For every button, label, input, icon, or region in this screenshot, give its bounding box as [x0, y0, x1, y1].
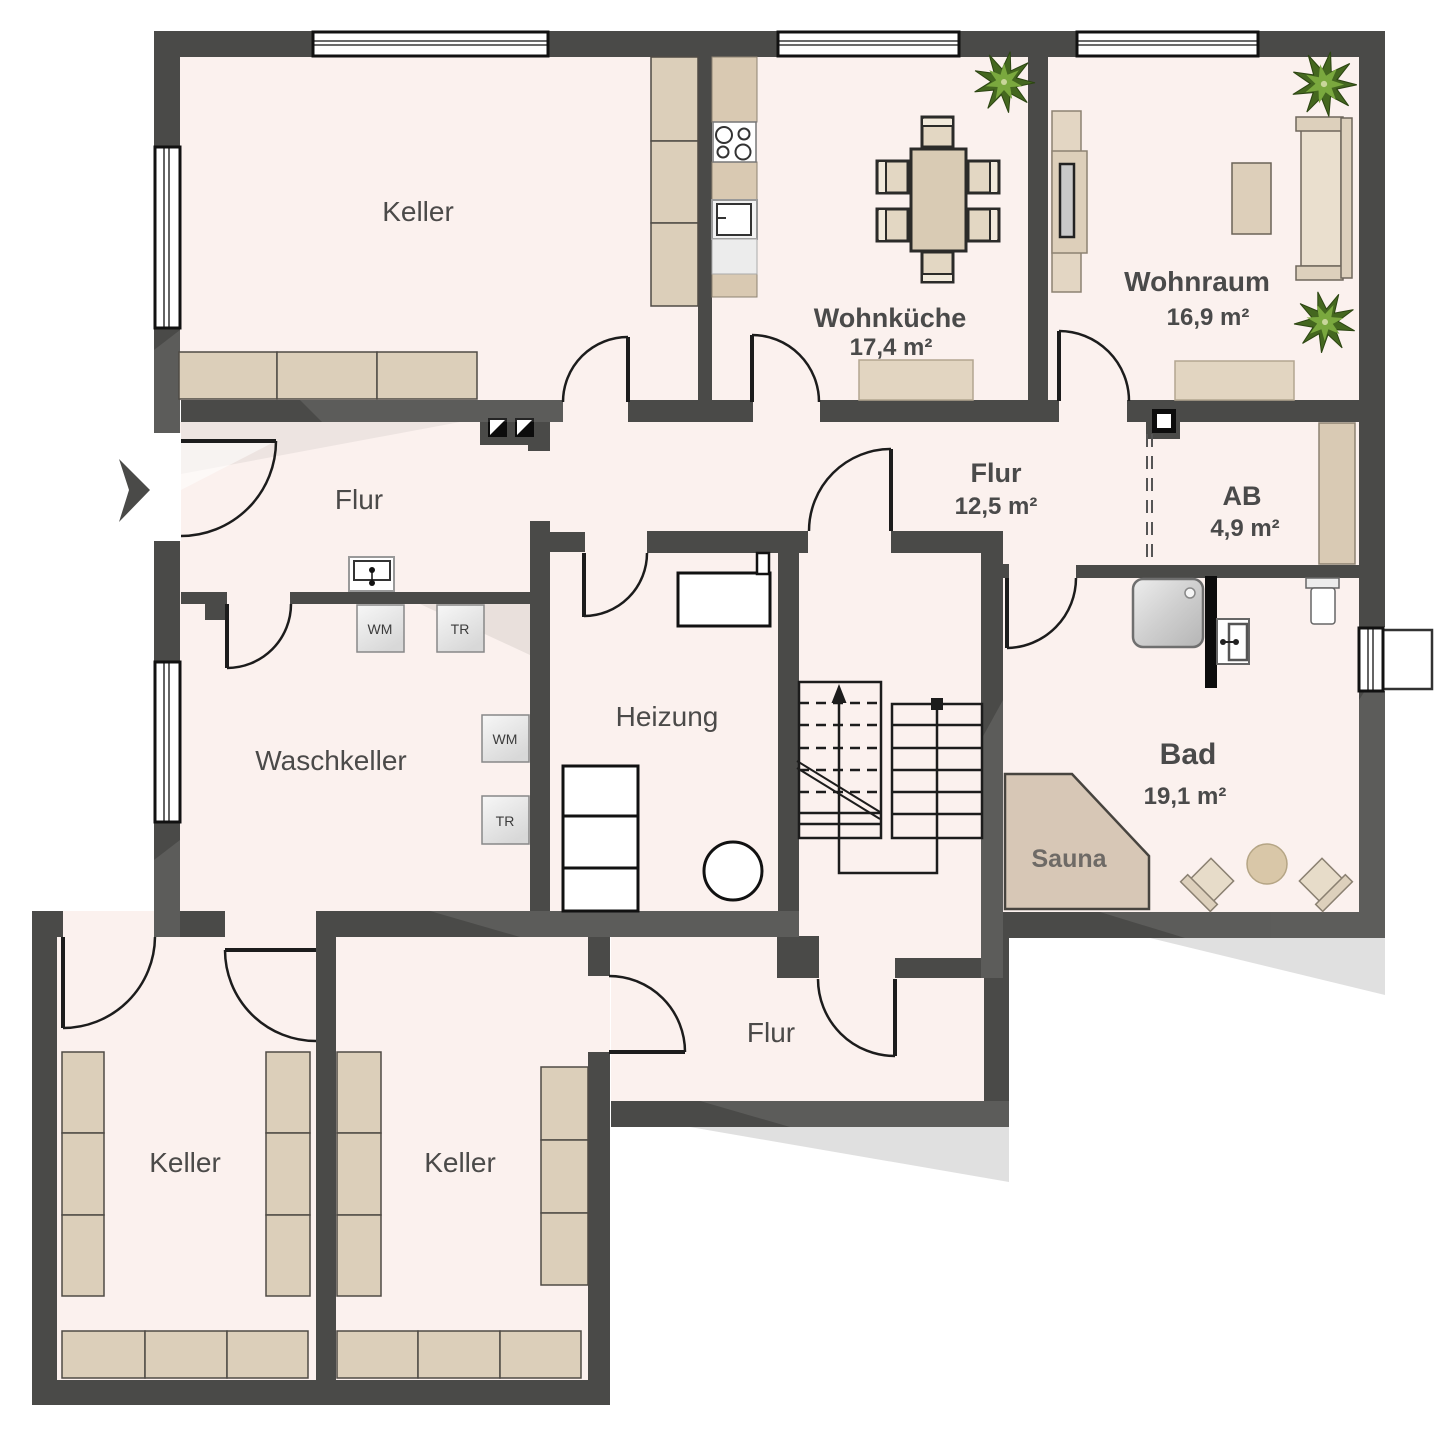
svg-text:Keller: Keller	[424, 1147, 496, 1178]
svg-text:AB: AB	[1223, 481, 1262, 511]
svg-text:4,9 m²: 4,9 m²	[1210, 515, 1279, 542]
svg-text:Sauna: Sauna	[1031, 845, 1107, 873]
svg-text:Wohnraum: Wohnraum	[1124, 266, 1270, 297]
svg-text:Keller: Keller	[149, 1147, 221, 1178]
svg-text:Heizung: Heizung	[616, 701, 719, 732]
svg-text:TR: TR	[451, 621, 470, 637]
svg-text:Flur: Flur	[335, 484, 383, 515]
svg-text:12,5 m²: 12,5 m²	[955, 493, 1038, 520]
svg-text:Waschkeller: Waschkeller	[255, 745, 406, 776]
svg-text:Flur: Flur	[971, 458, 1022, 488]
svg-text:Keller: Keller	[382, 196, 454, 227]
svg-text:WM: WM	[368, 621, 393, 637]
svg-text:Flur: Flur	[747, 1017, 795, 1048]
svg-text:19,1 m²: 19,1 m²	[1144, 783, 1227, 810]
svg-text:WM: WM	[493, 731, 518, 747]
svg-text:Bad: Bad	[1160, 738, 1217, 771]
svg-text:TR: TR	[496, 813, 515, 829]
svg-text:16,9 m²: 16,9 m²	[1167, 304, 1250, 331]
svg-text:17,4 m²: 17,4 m²	[850, 334, 933, 361]
svg-text:Wohnküche: Wohnküche	[814, 303, 967, 333]
